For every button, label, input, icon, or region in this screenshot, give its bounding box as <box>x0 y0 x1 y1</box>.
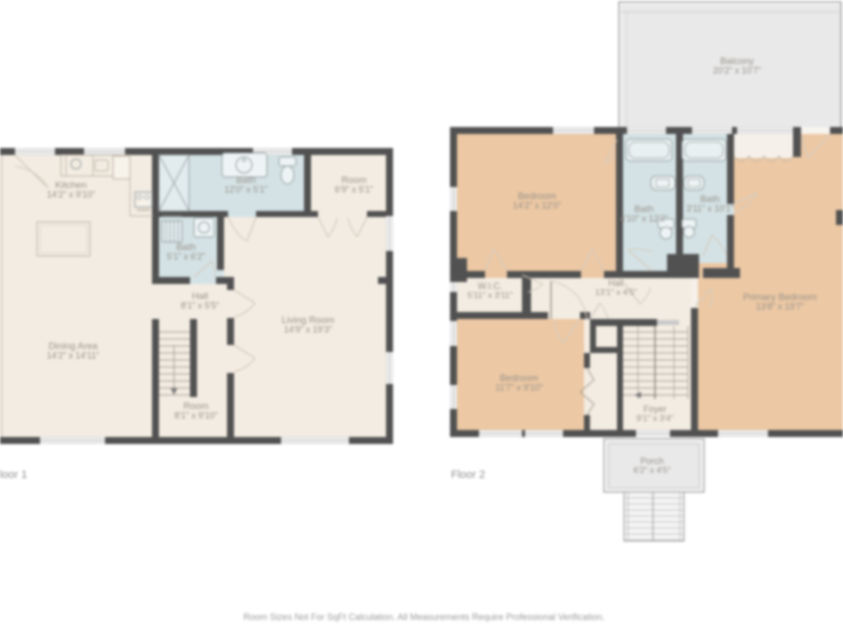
svg-text:14'2" x 14'11": 14'2" x 14'11" <box>47 351 100 361</box>
svg-text:3'11" x 10'1": 3'11" x 10'1" <box>686 204 734 214</box>
svg-text:13'1" x 4'5": 13'1" x 4'5" <box>595 287 637 297</box>
svg-text:9'1" x 3'4": 9'1" x 3'4" <box>636 413 673 423</box>
svg-text:14'9" x 19'3": 14'9" x 19'3" <box>284 325 332 335</box>
svg-text:Room Sizes Not For SqFt Calcul: Room Sizes Not For SqFt Calculation. All… <box>243 612 604 622</box>
svg-text:11'7" x 9'10": 11'7" x 9'10" <box>495 383 543 393</box>
svg-text:Floor 1: Floor 1 <box>0 469 27 481</box>
svg-text:Floor 2: Floor 2 <box>451 469 485 481</box>
svg-text:8'1" x 5'5": 8'1" x 5'5" <box>181 301 219 311</box>
svg-text:6'2" x 4'5": 6'2" x 4'5" <box>633 465 670 475</box>
svg-text:6'9" x 5'1": 6'9" x 5'1" <box>335 185 373 195</box>
svg-text:5'1" x 6'2": 5'1" x 6'2" <box>167 252 205 262</box>
svg-text:12'0" x 5'1": 12'0" x 5'1" <box>224 185 267 195</box>
svg-text:5'11" x 3'11": 5'11" x 3'11" <box>467 290 512 300</box>
svg-text:13'8" x 19'7": 13'8" x 19'7" <box>756 302 804 312</box>
svg-text:8'1" x 9'10": 8'1" x 9'10" <box>174 411 217 421</box>
svg-text:20'2" x 10'7": 20'2" x 10'7" <box>713 66 761 76</box>
svg-text:14'2" x 12'0": 14'2" x 12'0" <box>513 201 561 211</box>
svg-text:4'10" x 12'2": 4'10" x 12'2" <box>620 214 668 224</box>
svg-text:14'2" x 9'10": 14'2" x 9'10" <box>47 190 95 200</box>
